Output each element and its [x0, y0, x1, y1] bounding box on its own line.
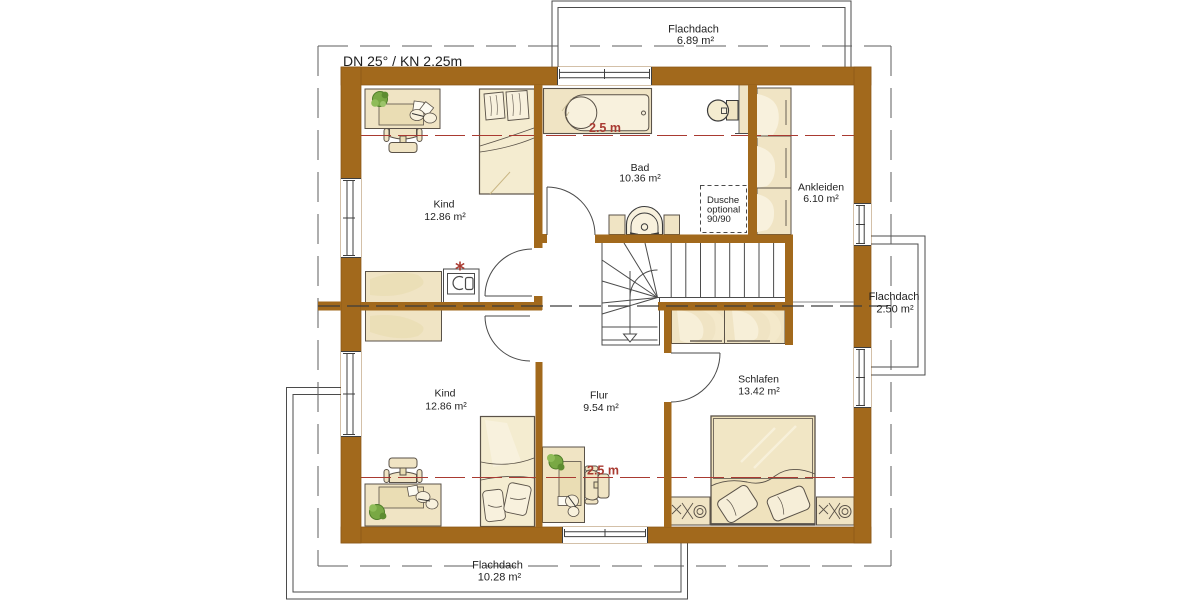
- svg-text:12.86 m²: 12.86 m²: [424, 211, 466, 223]
- svg-text:10.28 m²: 10.28 m²: [478, 572, 522, 584]
- svg-text:Kind: Kind: [434, 388, 455, 400]
- svg-text:2.50 m²: 2.50 m²: [876, 303, 914, 315]
- svg-text:DN 25° / KN 2.25m: DN 25° / KN 2.25m: [343, 53, 462, 69]
- svg-text:Flachdach: Flachdach: [869, 291, 920, 303]
- svg-text:90/90: 90/90: [707, 214, 731, 225]
- svg-text:6.89 m²: 6.89 m²: [677, 35, 715, 47]
- svg-text:12.86 m²: 12.86 m²: [425, 401, 467, 413]
- svg-text:13.42 m²: 13.42 m²: [738, 386, 780, 398]
- svg-text:Flur: Flur: [590, 389, 609, 401]
- svg-text:Schlafen: Schlafen: [738, 374, 779, 386]
- svg-text:Flachdach: Flachdach: [668, 24, 719, 36]
- svg-text:6.10 m²: 6.10 m²: [803, 193, 839, 205]
- svg-text:2.5 m: 2.5 m: [587, 463, 619, 477]
- svg-text:Ankleiden: Ankleiden: [798, 182, 844, 194]
- svg-text:Kind: Kind: [433, 199, 454, 211]
- svg-text:9.54 m²: 9.54 m²: [583, 402, 619, 414]
- svg-text:10.36 m²: 10.36 m²: [619, 173, 661, 185]
- svg-text:Flachdach: Flachdach: [472, 560, 523, 572]
- svg-text:2.5 m: 2.5 m: [589, 121, 621, 135]
